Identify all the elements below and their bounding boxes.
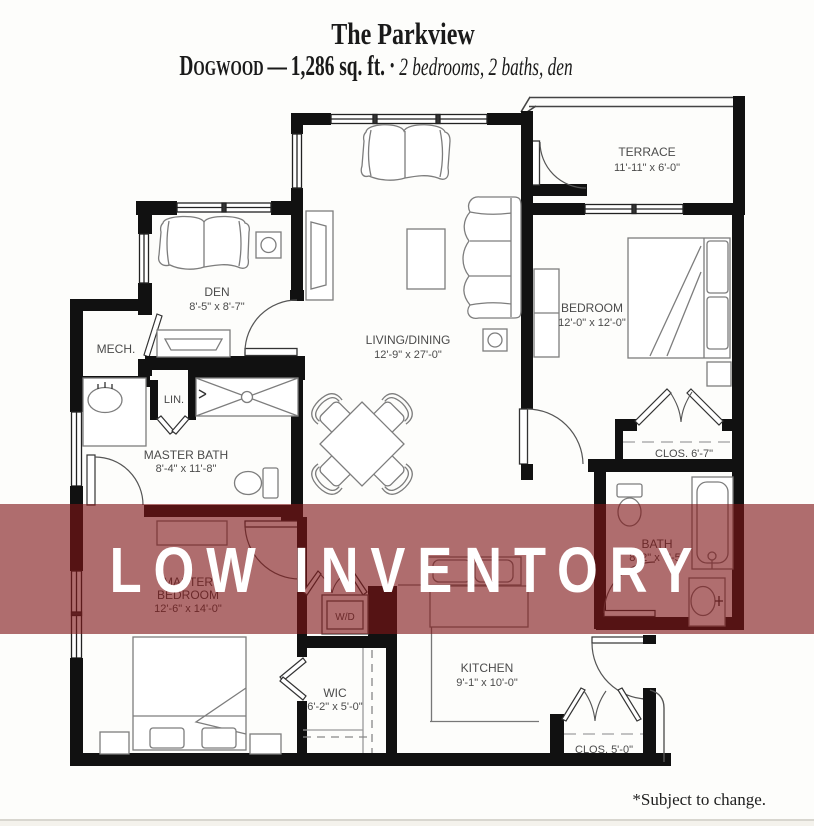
svg-text:CLOS. 6'-7": CLOS. 6'-7" [655,448,713,460]
svg-text:MECH.: MECH. [97,342,136,356]
svg-text:12'-9" x 27'-0": 12'-9" x 27'-0" [374,349,442,361]
svg-text:8'-4" x 11'-8": 8'-4" x 11'-8" [156,463,217,475]
svg-text:KITCHEN: KITCHEN [461,661,514,675]
svg-text:CLOS. 5'-0": CLOS. 5'-0" [575,744,633,756]
svg-text:BEDROOM: BEDROOM [561,301,623,315]
svg-text:TERRACE: TERRACE [618,145,675,159]
svg-text:11'-11" x 6'-0": 11'-11" x 6'-0" [614,162,680,174]
svg-text:9'-1" x 10'-0": 9'-1" x 10'-0" [456,677,518,689]
svg-text:8'-5" x 8'-7": 8'-5" x 8'-7" [189,301,245,313]
svg-text:LIVING/DINING: LIVING/DINING [366,333,451,347]
svg-text:WIC: WIC [323,686,347,700]
svg-text:LIN.: LIN. [164,394,184,406]
svg-text:12'-0" x 12'-0": 12'-0" x 12'-0" [558,317,626,329]
svg-text:MASTER BATH: MASTER BATH [144,448,228,462]
svg-text:6'-2" x 5'-0": 6'-2" x 5'-0" [307,701,363,713]
svg-text:DEN: DEN [204,285,229,299]
